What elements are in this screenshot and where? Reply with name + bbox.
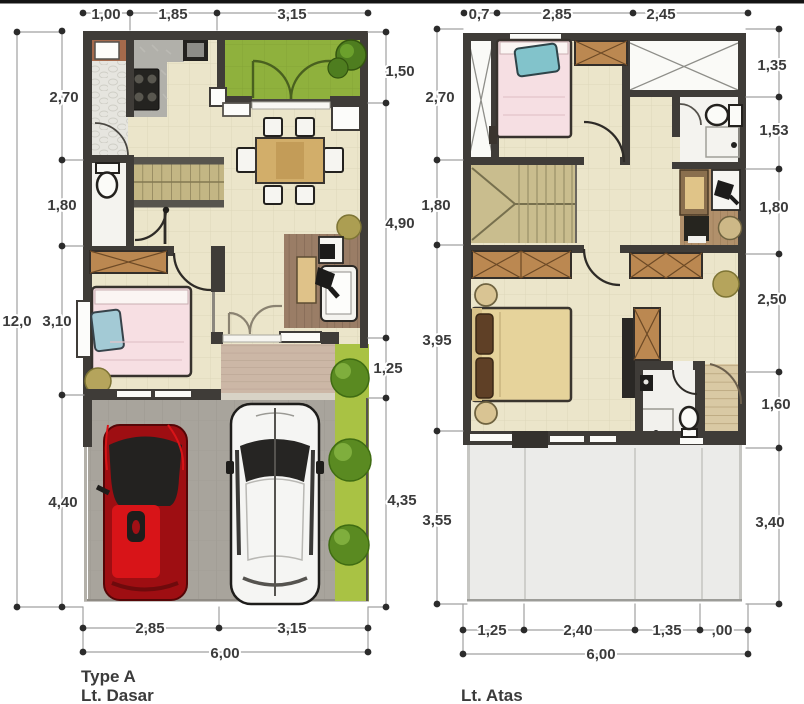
svg-text:2,70: 2,70 — [49, 89, 78, 106]
svg-text:0,7: 0,7 — [469, 6, 490, 23]
svg-text:6,00: 6,00 — [210, 645, 239, 662]
svg-text:2,85: 2,85 — [542, 6, 571, 23]
svg-text:1,53: 1,53 — [759, 122, 788, 139]
svg-text:1,80: 1,80 — [759, 199, 788, 216]
svg-text:1,80: 1,80 — [47, 197, 76, 214]
svg-text:6,00: 6,00 — [586, 646, 615, 663]
svg-text:2,70: 2,70 — [425, 89, 454, 106]
svg-text:1,35: 1,35 — [652, 622, 681, 639]
svg-text:3,95: 3,95 — [422, 332, 451, 349]
svg-text:1,25: 1,25 — [477, 622, 506, 639]
svg-text:1,85: 1,85 — [158, 6, 187, 23]
svg-text:3,10: 3,10 — [42, 313, 71, 330]
svg-text:2,45: 2,45 — [646, 6, 675, 23]
svg-text:1,80: 1,80 — [421, 197, 450, 214]
svg-text:1,60: 1,60 — [761, 396, 790, 413]
svg-text:4,40: 4,40 — [48, 494, 77, 511]
svg-text:3,15: 3,15 — [277, 6, 306, 23]
svg-text:2,40: 2,40 — [563, 622, 592, 639]
svg-text:Lt. Dasar: Lt. Dasar — [81, 686, 154, 704]
svg-text:3,15: 3,15 — [277, 620, 306, 637]
svg-text:1,25: 1,25 — [373, 360, 402, 377]
svg-text:1,00: 1,00 — [91, 6, 120, 23]
svg-text:4,35: 4,35 — [387, 492, 416, 509]
svg-text:4,90: 4,90 — [385, 215, 414, 232]
svg-text:1,50: 1,50 — [385, 63, 414, 80]
svg-text:3,55: 3,55 — [422, 512, 451, 529]
svg-text:2,50: 2,50 — [757, 291, 786, 308]
svg-text:Lt. Atas: Lt. Atas — [461, 686, 523, 704]
svg-text:Type A: Type A — [81, 667, 136, 686]
svg-text:,00: ,00 — [712, 622, 733, 639]
svg-text:1,35: 1,35 — [757, 57, 786, 74]
svg-text:2,85: 2,85 — [135, 620, 164, 637]
svg-text:3,40: 3,40 — [755, 514, 784, 531]
svg-text:12,0: 12,0 — [2, 313, 31, 330]
